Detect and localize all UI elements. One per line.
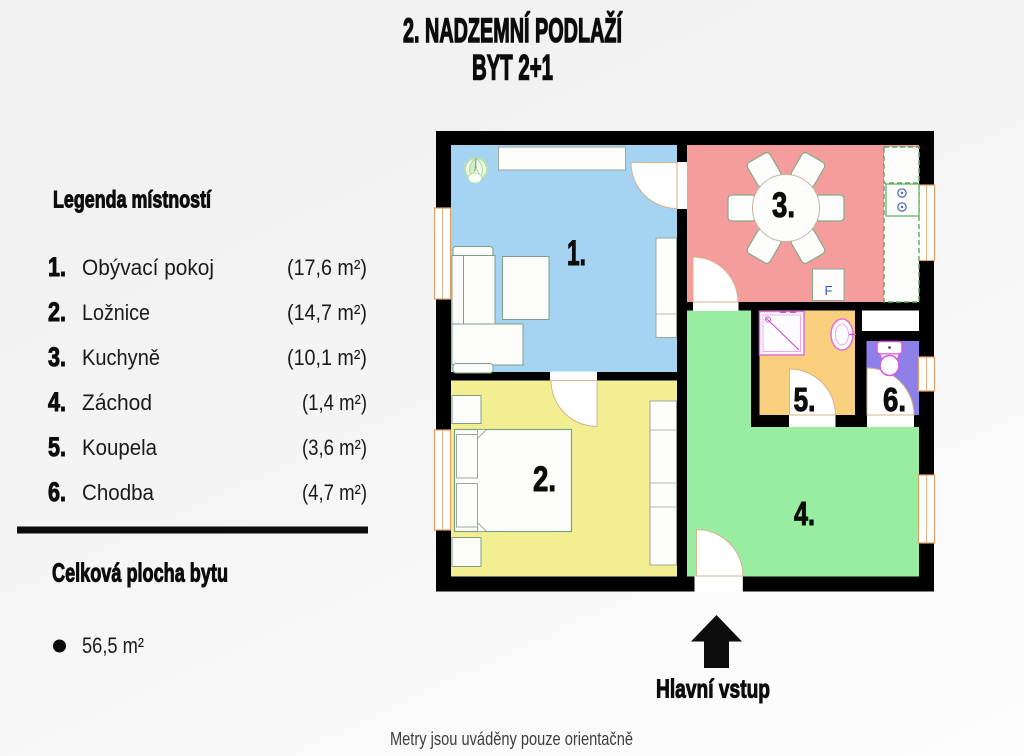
- svg-text:4.: 4.: [48, 387, 66, 417]
- svg-text:Celková plocha bytu: Celková plocha bytu: [52, 558, 228, 588]
- svg-text:Metry jsou uváděny pouze orien: Metry jsou uváděny pouze orientačně: [390, 728, 633, 749]
- svg-text:Koupela: Koupela: [82, 435, 158, 460]
- svg-text:Kuchyně: Kuchyně: [82, 345, 160, 370]
- svg-text:6.: 6.: [883, 381, 906, 418]
- svg-text:1.: 1.: [48, 252, 66, 282]
- svg-text:4.: 4.: [794, 495, 815, 532]
- svg-text:2.: 2.: [48, 297, 66, 327]
- svg-text:Hlavní vstup: Hlavní vstup: [656, 674, 770, 704]
- svg-text:(14,7 m²): (14,7 m²): [287, 300, 367, 325]
- svg-text:(3,6 m²): (3,6 m²): [302, 435, 367, 460]
- svg-text:3.: 3.: [48, 342, 66, 372]
- svg-text:5.: 5.: [794, 381, 816, 418]
- svg-text:Legenda místností: Legenda místností: [53, 187, 212, 214]
- svg-text:Chodba: Chodba: [82, 480, 155, 505]
- svg-text:56,5 m²: 56,5 m²: [82, 633, 144, 658]
- svg-text:F: F: [825, 283, 833, 298]
- svg-text:5.: 5.: [48, 432, 66, 462]
- svg-text:1.: 1.: [567, 234, 586, 273]
- svg-text:Ložnice: Ložnice: [82, 300, 150, 325]
- svg-text:2. NADZEMNÍ PODLAŽÍ: 2. NADZEMNÍ PODLAŽÍ: [403, 12, 623, 50]
- svg-text:3.: 3.: [772, 186, 795, 225]
- svg-text:2.: 2.: [533, 460, 556, 499]
- svg-text:(1,4 m²): (1,4 m²): [302, 390, 367, 415]
- svg-text:(17,6 m²): (17,6 m²): [287, 255, 367, 280]
- svg-text:(10,1 m²): (10,1 m²): [287, 345, 367, 370]
- svg-text:Záchod: Záchod: [82, 390, 152, 415]
- svg-text:Obývací pokoj: Obývací pokoj: [82, 255, 214, 280]
- svg-text:6.: 6.: [48, 477, 66, 507]
- svg-text:BYT 2+1: BYT 2+1: [472, 49, 553, 88]
- svg-text:(4,7 m²): (4,7 m²): [302, 480, 367, 505]
